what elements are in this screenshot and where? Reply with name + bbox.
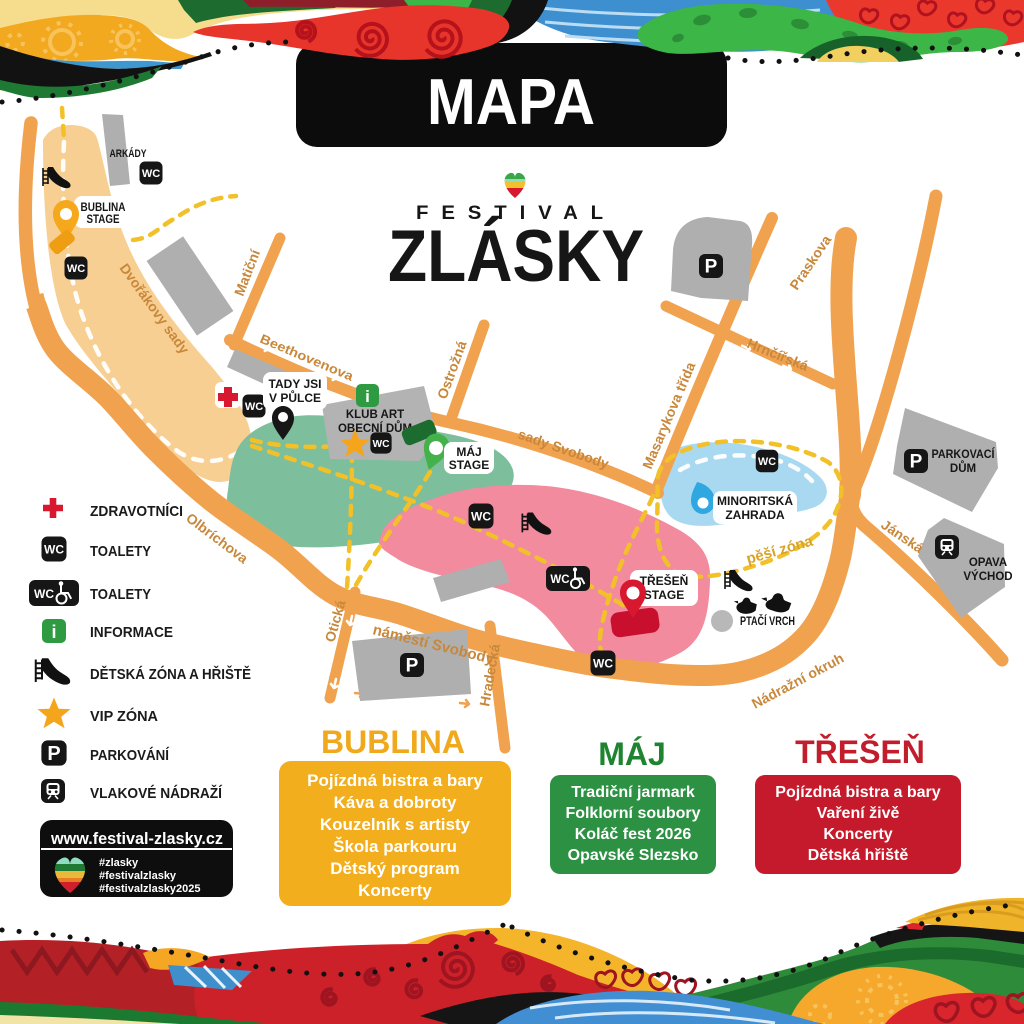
svg-text:BUBLINA: BUBLINA <box>81 202 126 214</box>
svg-text:DŮM: DŮM <box>950 461 976 475</box>
svg-text:PARKOVÁNÍ: PARKOVÁNÍ <box>90 747 170 764</box>
svg-text:ZDRAVOTNÍCI: ZDRAVOTNÍCI <box>90 503 183 520</box>
svg-text:Škola parkouru: Škola parkouru <box>333 837 457 856</box>
svg-text:TOALETY: TOALETY <box>90 543 151 560</box>
svg-text:Koláč fest 2026: Koláč fest 2026 <box>575 826 692 843</box>
svg-text:Pojízdná bistra a bary: Pojízdná bistra a bary <box>775 784 940 801</box>
svg-text:#zlasky: #zlasky <box>99 857 139 869</box>
svg-text:ZLÁSKY: ZLÁSKY <box>388 216 644 297</box>
svg-text:www.festival-zlasky.cz: www.festival-zlasky.cz <box>50 829 223 848</box>
svg-text:MAPA: MAPA <box>427 65 595 138</box>
svg-text:DĚTSKÁ ZÓNA A HŘIŠTĚ: DĚTSKÁ ZÓNA A HŘIŠTĚ <box>90 665 251 683</box>
svg-text:STAGE: STAGE <box>449 458 489 472</box>
svg-text:KLUB ART: KLUB ART <box>346 409 404 421</box>
svg-text:TADY JSI: TADY JSI <box>269 377 322 391</box>
svg-text:TOALETY: TOALETY <box>90 586 151 603</box>
svg-text:VLAKOVÉ NÁDRAŽÍ: VLAKOVÉ NÁDRAŽÍ <box>90 784 223 802</box>
svg-text:WC: WC <box>34 587 54 601</box>
svg-text:Vaření živě: Vaření živě <box>817 805 900 822</box>
svg-text:STAGE: STAGE <box>87 214 120 226</box>
svg-text:Opavské Slezsko: Opavské Slezsko <box>568 847 699 864</box>
svg-text:STAGE: STAGE <box>644 588 684 602</box>
svg-text:TŘEŠEŇ: TŘEŠEŇ <box>795 734 925 770</box>
svg-text:VÝCHOD: VÝCHOD <box>963 570 1012 583</box>
svg-text:#festivalzlasky: #festivalzlasky <box>99 870 177 882</box>
svg-text:ZAHRADA: ZAHRADA <box>725 508 785 522</box>
svg-text:Pojízdná bistra a bary: Pojízdná bistra a bary <box>307 771 483 790</box>
svg-text:ARKÁDY: ARKÁDY <box>110 147 148 160</box>
svg-text:BUBLINA: BUBLINA <box>321 724 465 760</box>
svg-text:PTAČÍ VRCH: PTAČÍ VRCH <box>740 615 795 628</box>
svg-text:VIP ZÓNA: VIP ZÓNA <box>90 707 158 725</box>
svg-text:PARKOVACÍ: PARKOVACÍ <box>932 448 996 461</box>
svg-text:TŘEŠEŇ: TŘEŠEŇ <box>640 573 689 588</box>
svg-text:Kouzelník s artisty: Kouzelník s artisty <box>320 815 471 834</box>
svg-text:Dětský program: Dětský program <box>330 859 459 878</box>
svg-text:INFORMACE: INFORMACE <box>90 624 173 641</box>
svg-text:Tradiční jarmark: Tradiční jarmark <box>571 784 695 801</box>
svg-text:OPAVA: OPAVA <box>969 557 1007 569</box>
svg-text:Koncerty: Koncerty <box>823 826 892 843</box>
svg-text:Folklorní soubory: Folklorní soubory <box>565 805 700 822</box>
svg-text:i: i <box>365 387 370 406</box>
svg-text:V PŮLCE: V PŮLCE <box>269 389 321 405</box>
svg-text:Koncerty: Koncerty <box>358 881 432 900</box>
svg-text:MÁJ: MÁJ <box>456 444 481 459</box>
svg-text:MÁJ: MÁJ <box>598 736 666 772</box>
svg-text:MINORITSKÁ: MINORITSKÁ <box>717 493 793 508</box>
svg-text:#festivalzlasky2025: #festivalzlasky2025 <box>99 883 201 895</box>
svg-text:i: i <box>51 622 56 642</box>
svg-text:Káva a dobroty: Káva a dobroty <box>334 793 457 812</box>
svg-text:Dětská hřiště: Dětská hřiště <box>808 847 909 864</box>
svg-text:WC: WC <box>550 574 569 586</box>
